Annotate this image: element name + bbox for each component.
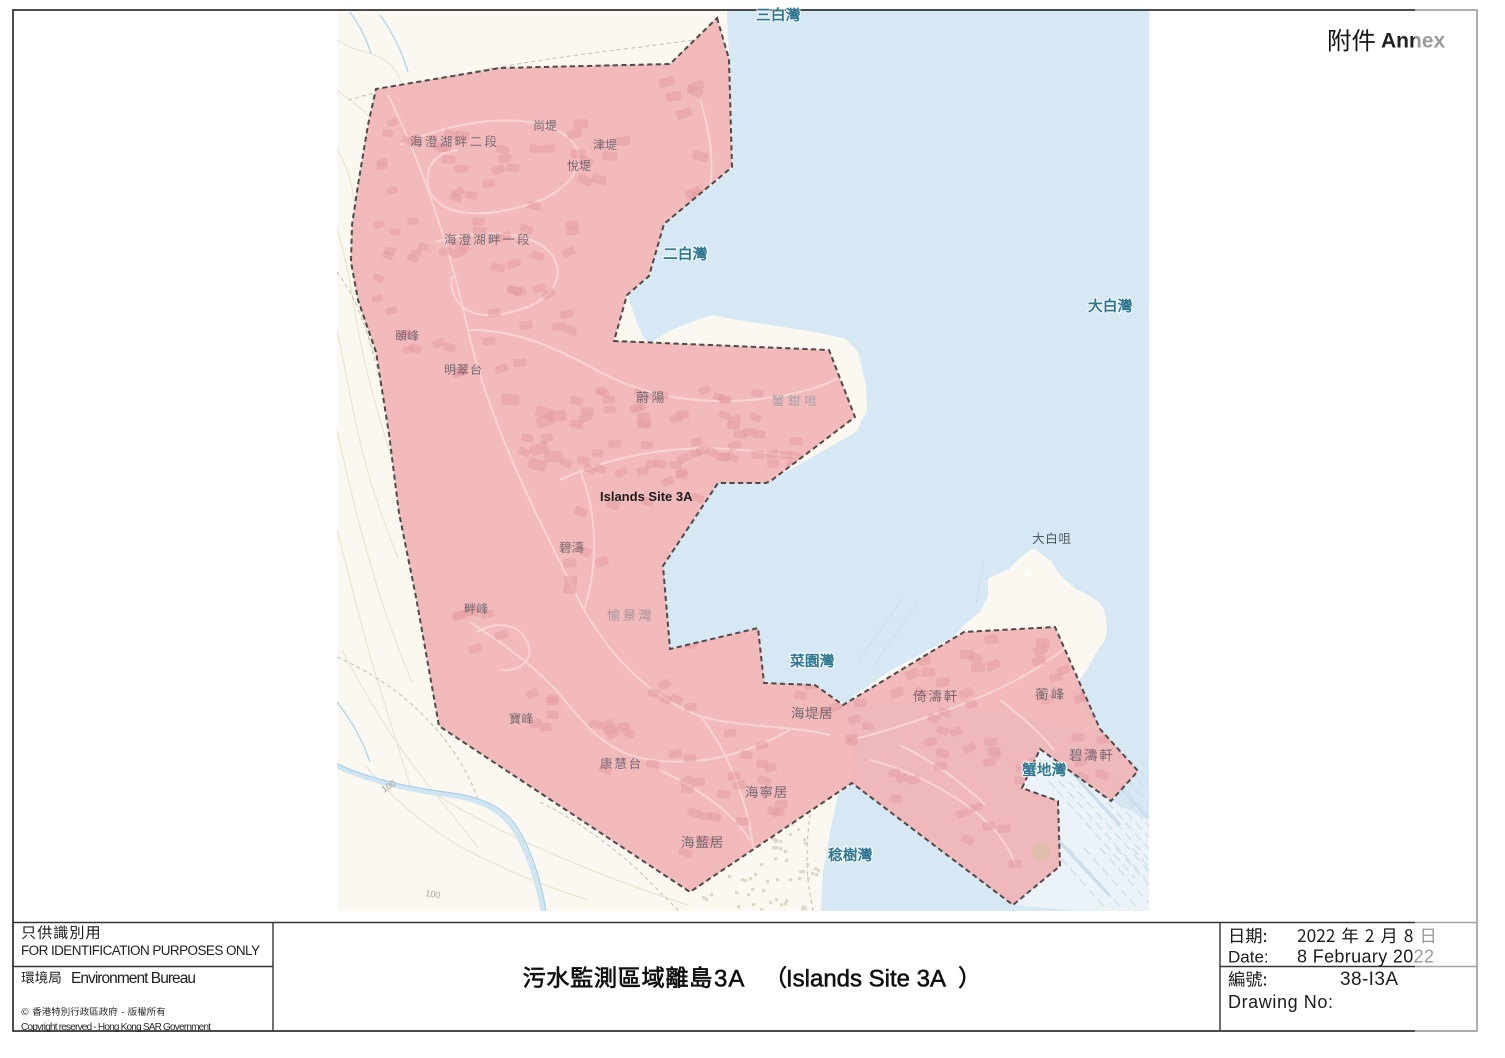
svg-text:100: 100 — [425, 888, 441, 900]
svg-text:38-I3A: 38-I3A — [1340, 969, 1398, 990]
svg-text:Copyright reserved - Hong Kong: Copyright reserved - Hong Kong SAR Gover… — [21, 1022, 211, 1033]
svg-text:8 February 2022: 8 February 2022 — [1297, 947, 1434, 967]
svg-text:Date:: Date: — [1228, 948, 1269, 967]
svg-text:Islands Site 3A: Islands Site 3A — [786, 966, 946, 993]
svg-text:FOR IDENTIFICATION PURPOSES ON: FOR IDENTIFICATION PURPOSES ONLY — [21, 943, 260, 958]
svg-text:3A: 3A — [714, 966, 745, 993]
svg-text:Drawing No:: Drawing No: — [1228, 992, 1333, 1012]
svg-text:Islands Site 3A: Islands Site 3A — [600, 489, 693, 504]
svg-text:Environment Bureau: Environment Bureau — [71, 970, 196, 987]
